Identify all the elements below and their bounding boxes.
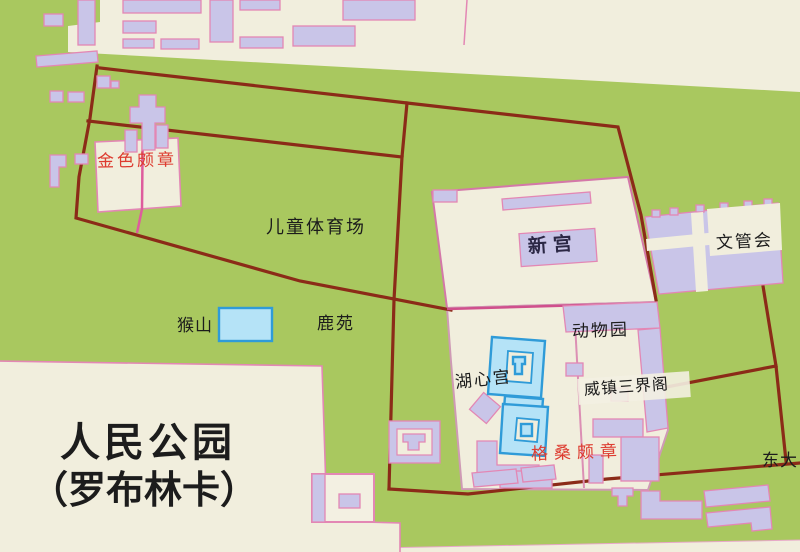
label-dongda-gate: 东大 <box>762 452 798 471</box>
label-jinse-phodrang: 金色颇章 <box>97 151 177 171</box>
label-ertong-stadium: 儿童体育场 <box>266 218 366 238</box>
gatehouse <box>312 474 374 522</box>
label-gesang-phodrang: 格桑颇章 <box>531 442 624 464</box>
park-title-line2: （罗布林卡） <box>30 459 258 514</box>
monkey-hill-pond <box>219 308 272 341</box>
label-wenguanhui: 文管会 <box>716 232 774 254</box>
south-buildings <box>312 465 772 531</box>
small-temple <box>389 421 440 463</box>
jinse-phodrang-courtyard <box>95 138 181 212</box>
label-xingong: 新宫 <box>527 234 578 258</box>
jinse-phodrang-palace <box>125 95 168 152</box>
label-luyuan: 鹿苑 <box>317 315 355 334</box>
norbulingka-park-map: 金色颇章 儿童体育场 新宫 文管会 猴山 鹿苑 动物园 湖心宫 威镇三界阁 格桑… <box>0 0 800 552</box>
label-houshan: 猴山 <box>177 317 213 336</box>
label-dongwuyuan: 动物园 <box>572 321 630 342</box>
